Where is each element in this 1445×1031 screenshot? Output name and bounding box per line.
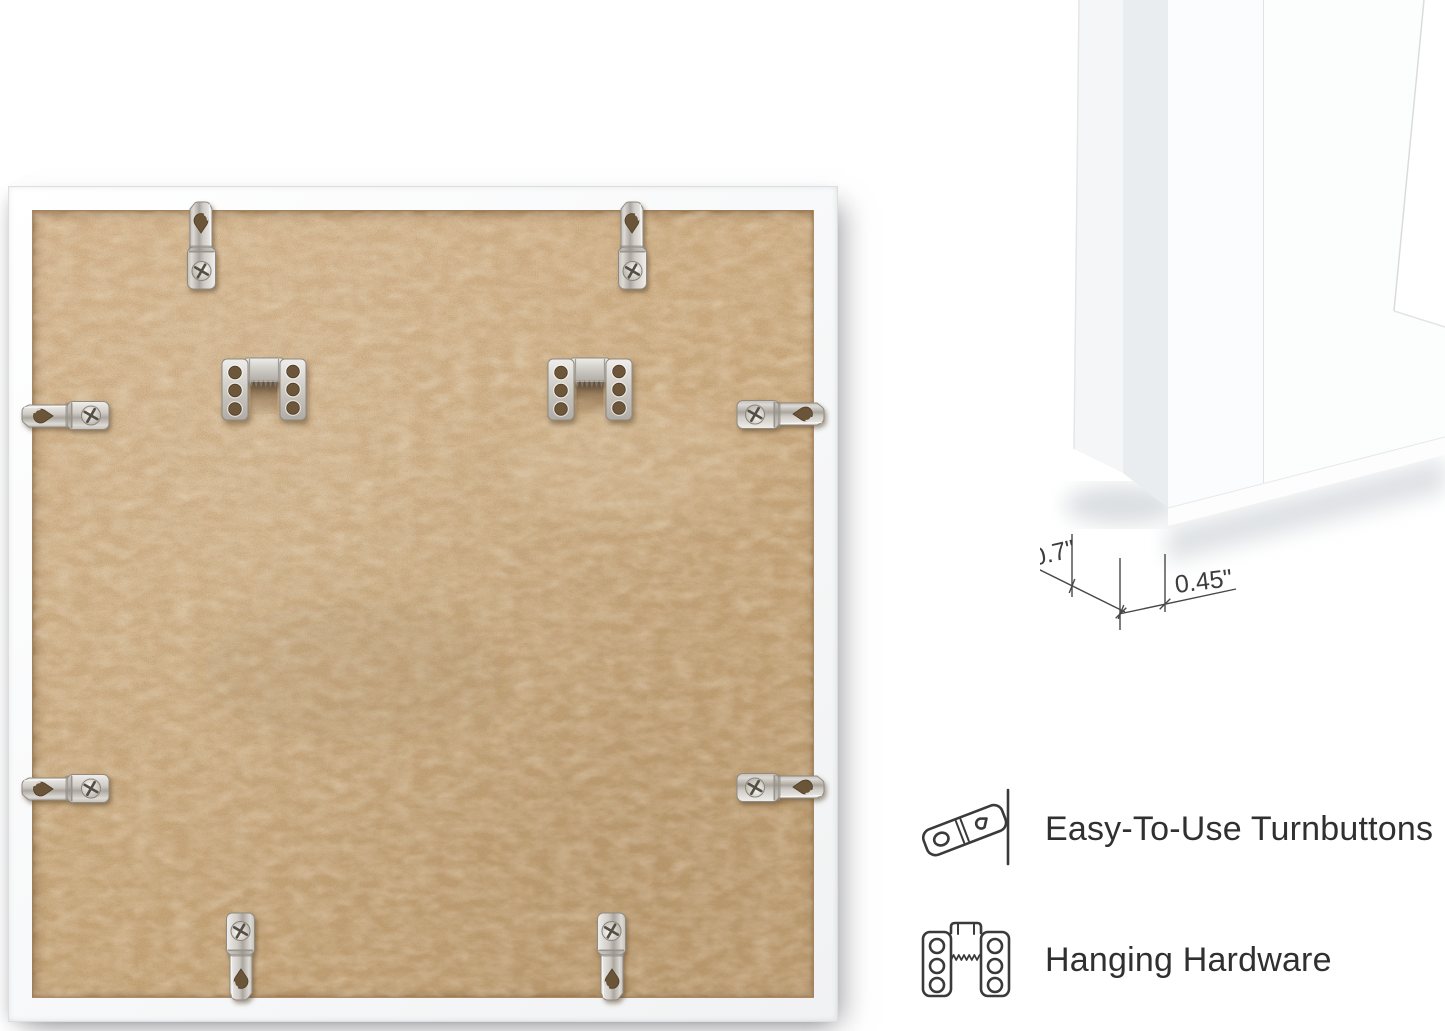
turnbutton-bottom-right xyxy=(593,911,629,1003)
product-image: 0.7" 0.45" Easy-To-Use Turnbuttons Hangi… xyxy=(0,0,1445,1031)
hanging-hardware-icon xyxy=(920,920,1012,1000)
turnbutton-bottom-left xyxy=(222,911,258,1003)
turnbutton-left-upper xyxy=(19,397,111,433)
turnbutton-right-lower xyxy=(735,770,827,806)
turnbutton-left-lower xyxy=(19,770,111,806)
turnbutton-top-right xyxy=(615,199,651,291)
feature-label: Easy-To-Use Turnbuttons xyxy=(1045,810,1433,849)
feature-turnbuttons: Easy-To-Use Turnbuttons xyxy=(920,788,1014,866)
sawtooth-hanger-right xyxy=(547,357,633,421)
feature-label: Hanging Hardware xyxy=(1045,941,1332,980)
turnbutton-top-left xyxy=(184,199,220,291)
turnbutton-right-upper xyxy=(735,397,827,433)
sawtooth-hanger-left xyxy=(221,357,307,421)
mdf-texture xyxy=(33,211,813,997)
frame-front-face xyxy=(1168,0,1264,508)
frame-outer-side xyxy=(1074,0,1123,473)
frame-side-shadow-band xyxy=(1123,0,1168,508)
face-dimension-label: 0.45" xyxy=(1173,564,1234,599)
frame-corner-diagram: 0.7" 0.45" xyxy=(1040,0,1445,700)
frame-back-panel xyxy=(8,186,838,1022)
turnbutton-icon xyxy=(920,788,1014,866)
mdf-backing-board xyxy=(32,210,814,998)
feature-hanging-hardware: Hanging Hardware xyxy=(920,920,1012,1000)
